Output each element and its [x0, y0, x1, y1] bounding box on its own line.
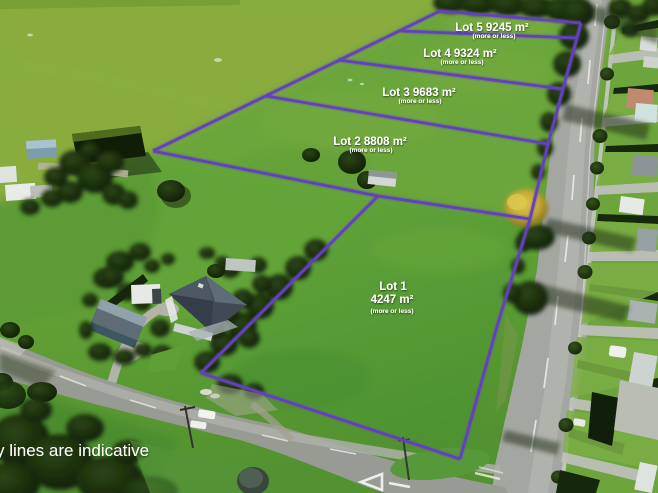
svg-text:y lines are indicative: y lines are indicative [0, 441, 149, 460]
svg-text:(more or less): (more or less) [441, 59, 484, 66]
svg-text:(more or less): (more or less) [350, 147, 393, 154]
svg-text:(more or less): (more or less) [473, 33, 516, 40]
svg-text:(more or less): (more or less) [399, 98, 442, 105]
svg-text:(more or less): (more or less) [371, 308, 414, 315]
svg-text:Lot 1: Lot 1 [379, 281, 407, 293]
svg-text:4247 m²: 4247 m² [371, 294, 414, 306]
